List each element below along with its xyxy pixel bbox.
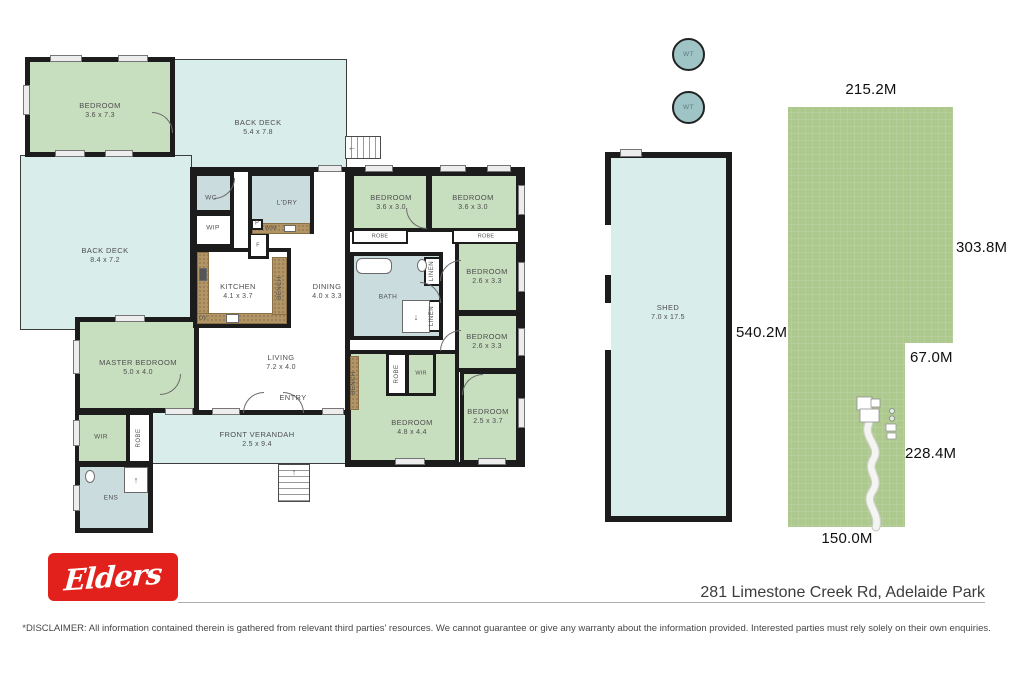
window bbox=[318, 165, 342, 172]
label-back-deck-left: BACK DECK8.4 x 7.2 bbox=[82, 246, 129, 266]
bathtub-icon bbox=[356, 258, 392, 274]
window bbox=[165, 408, 193, 415]
stairs-arrow-icon: ← bbox=[348, 142, 357, 152]
elders-logo-text: Elders bbox=[63, 556, 163, 597]
kitchen-bench-left bbox=[197, 252, 209, 314]
window bbox=[73, 340, 80, 374]
window bbox=[23, 85, 30, 115]
label-bedroom-6: BEDROOM2.5 x 3.7 bbox=[467, 407, 509, 427]
label-bedroom-1: BEDROOM3.6 x 3.0 bbox=[370, 193, 412, 213]
shower-arrow-icon: ↓ bbox=[414, 312, 419, 322]
label-wip: WIP bbox=[206, 225, 219, 234]
label-entry: ENTRY bbox=[279, 393, 306, 403]
label-robe-1: ROBE bbox=[372, 233, 388, 240]
room-shed bbox=[605, 152, 732, 522]
window bbox=[118, 55, 148, 62]
elders-logo: Elders bbox=[48, 553, 178, 601]
label-hall-bench: BENCH bbox=[351, 371, 357, 395]
land-measure-notch-right: 228.4M bbox=[905, 445, 956, 462]
land-measure-notch-top: 67.0M bbox=[910, 349, 953, 366]
label-wc: WC bbox=[205, 195, 217, 204]
house-footprint-icon bbox=[857, 397, 872, 410]
property-address: 281 Limestone Creek Rd, Adelaide Park bbox=[560, 584, 985, 602]
label-pantry: P bbox=[255, 220, 259, 227]
label-wm: W/M bbox=[265, 225, 277, 232]
tank-dot-icon bbox=[889, 408, 894, 413]
toilet-icon bbox=[417, 259, 427, 272]
label-bedroom-4: BEDROOM2.6 x 3.3 bbox=[466, 332, 508, 352]
land-measure-top: 215.2M bbox=[831, 81, 911, 98]
label-oven: OV bbox=[199, 315, 207, 322]
shower-arrow-icon: ↑ bbox=[134, 475, 139, 485]
window bbox=[212, 408, 240, 415]
label-dining: DINING4.0 x 3.3 bbox=[312, 282, 342, 302]
house-footprint-icon bbox=[871, 399, 880, 407]
shed-door-opening bbox=[602, 225, 611, 275]
water-tank-2: WT bbox=[672, 91, 705, 124]
window bbox=[620, 149, 642, 157]
window bbox=[105, 150, 133, 157]
window bbox=[55, 150, 85, 157]
window bbox=[115, 315, 145, 322]
shed-door-opening bbox=[602, 303, 611, 350]
land-measure-bottom: 150.0M bbox=[816, 530, 878, 547]
outbuilding-icon bbox=[886, 424, 896, 431]
window bbox=[73, 420, 80, 446]
label-master: MASTER BEDROOM5.0 x 4.0 bbox=[99, 358, 177, 378]
water-tank-1: WT bbox=[672, 38, 705, 71]
label-robe-master: ROBE bbox=[136, 428, 142, 447]
label-bedroom-3: BEDROOM2.6 x 3.3 bbox=[466, 267, 508, 287]
window bbox=[518, 185, 525, 215]
house-footprint-icon bbox=[860, 409, 879, 422]
water-tank-label: WT bbox=[683, 104, 694, 111]
window bbox=[518, 328, 525, 356]
shed-frontage-measure: 540.2M bbox=[736, 324, 787, 341]
window bbox=[518, 398, 525, 428]
label-ensuite: ENS bbox=[104, 495, 119, 504]
label-wir-2: WIR bbox=[415, 370, 426, 377]
washing-machine-icon bbox=[284, 225, 296, 232]
label-kitchen: KITCHEN4.1 x 3.7 bbox=[220, 282, 256, 302]
label-linen-1: LINEN bbox=[429, 261, 435, 281]
label-laundry: L'DRY bbox=[277, 200, 297, 209]
label-bedroom-5: BEDROOM4.8 x 4.4 bbox=[391, 418, 433, 438]
label-shed: SHED7.0 x 17.5 bbox=[651, 303, 685, 323]
label-bedroom-tl: BEDROOM3.6 x 7.3 bbox=[79, 101, 121, 121]
water-tank-label: WT bbox=[683, 51, 694, 58]
label-fridge: F bbox=[256, 242, 260, 249]
label-verandah: FRONT VERANDAH2.5 x 9.4 bbox=[219, 430, 294, 450]
tank-dot-icon bbox=[889, 416, 894, 421]
outbuilding-icon bbox=[887, 433, 896, 439]
stove-icon bbox=[226, 314, 239, 323]
label-living: LIVING7.2 x 4.0 bbox=[266, 353, 296, 373]
window bbox=[395, 458, 425, 465]
label-linen-2: LINEN bbox=[429, 306, 435, 326]
label-back-deck-top: BACK DECK5.4 x 7.8 bbox=[235, 118, 282, 138]
toilet-icon bbox=[85, 470, 95, 483]
window bbox=[73, 485, 80, 511]
window bbox=[50, 55, 82, 62]
disclaimer-text: *DISCLAIMER: All information contained t… bbox=[0, 623, 1013, 634]
window bbox=[478, 458, 506, 465]
label-wir-master: WIR bbox=[94, 434, 108, 443]
window bbox=[487, 165, 511, 172]
stairs-arrow-icon: ↑ bbox=[292, 467, 297, 477]
land-measure-right: 303.8M bbox=[956, 239, 1007, 256]
label-bath: BATH bbox=[379, 294, 397, 303]
label-robe-3: ROBE bbox=[394, 364, 400, 383]
window bbox=[440, 165, 466, 172]
label-bedroom-2: BEDROOM3.6 x 3.0 bbox=[452, 193, 494, 213]
floorplan-page: { "plan": { "rooms": { "bedroom_tl": {"n… bbox=[0, 0, 1013, 675]
label-robe-2: ROBE bbox=[478, 233, 494, 240]
window bbox=[365, 165, 393, 172]
window bbox=[322, 408, 344, 415]
label-kitchen-bench: BENCH bbox=[277, 276, 283, 300]
window bbox=[518, 262, 525, 292]
divider-line bbox=[178, 602, 985, 603]
kitchen-sink-icon bbox=[199, 268, 207, 281]
